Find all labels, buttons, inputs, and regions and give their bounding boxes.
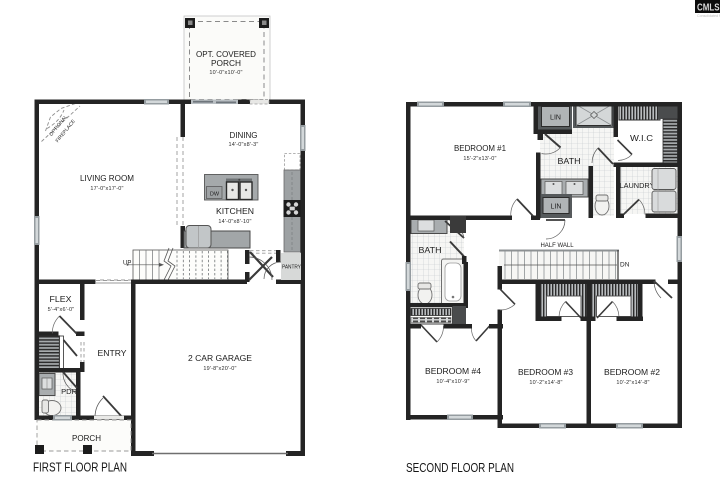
svg-text:Consolidated MLS: Consolidated MLS (697, 14, 720, 18)
svg-text:PORCH: PORCH (211, 58, 241, 68)
svg-text:HALF WALL: HALF WALL (540, 243, 574, 249)
svg-text:DN: DN (620, 262, 630, 269)
svg-text:PORCH: PORCH (72, 433, 101, 443)
svg-text:KITCHEN: KITCHEN (216, 206, 254, 216)
svg-text:2 CAR GARAGE: 2 CAR GARAGE (188, 353, 252, 363)
svg-text:10'-0"x10'-0": 10'-0"x10'-0" (209, 70, 242, 76)
svg-text:CMLS: CMLS (697, 3, 720, 14)
svg-text:W.I.C: W.I.C (630, 133, 653, 143)
svg-text:14'-0"x8'-3": 14'-0"x8'-3" (228, 142, 258, 148)
svg-text:LIN: LIN (550, 115, 561, 122)
svg-text:SECOND FLOOR PLAN: SECOND FLOOR PLAN (406, 461, 514, 475)
svg-text:BATH: BATH (419, 245, 442, 255)
svg-text:BATH: BATH (558, 156, 581, 166)
svg-text:15'-2"x13'-0": 15'-2"x13'-0" (463, 156, 496, 162)
svg-text:10'-2"x14'-8": 10'-2"x14'-8" (616, 380, 649, 386)
svg-text:BEDROOM #4: BEDROOM #4 (425, 366, 481, 376)
svg-text:PANTRY: PANTRY (282, 265, 301, 271)
svg-text:5'-4"x6'-0": 5'-4"x6'-0" (48, 307, 75, 313)
svg-text:FIRST FLOOR PLAN: FIRST FLOOR PLAN (33, 461, 127, 475)
svg-text:10'-4"x10'-9": 10'-4"x10'-9" (436, 379, 469, 385)
svg-text:19'-8"x20'-0": 19'-8"x20'-0" (203, 366, 236, 372)
svg-text:BEDROOM #3: BEDROOM #3 (518, 367, 573, 377)
svg-text:BEDROOM #2: BEDROOM #2 (604, 367, 660, 377)
svg-text:FLEX: FLEX (50, 294, 72, 304)
svg-text:LIVING ROOM: LIVING ROOM (80, 173, 134, 183)
svg-text:DW: DW (210, 192, 220, 198)
svg-text:ENTRY: ENTRY (98, 348, 127, 358)
svg-text:14'-0"x8'-10": 14'-0"x8'-10" (218, 219, 251, 225)
svg-text:LIN: LIN (551, 204, 562, 211)
svg-text:17'-0"x17'-0": 17'-0"x17'-0" (90, 186, 123, 192)
svg-text:BEDROOM #1: BEDROOM #1 (454, 143, 506, 153)
svg-text:DINING: DINING (230, 130, 258, 140)
svg-text:10'-2"x14'-8": 10'-2"x14'-8" (529, 380, 562, 386)
svg-text:LAUNDRY: LAUNDRY (620, 181, 655, 190)
